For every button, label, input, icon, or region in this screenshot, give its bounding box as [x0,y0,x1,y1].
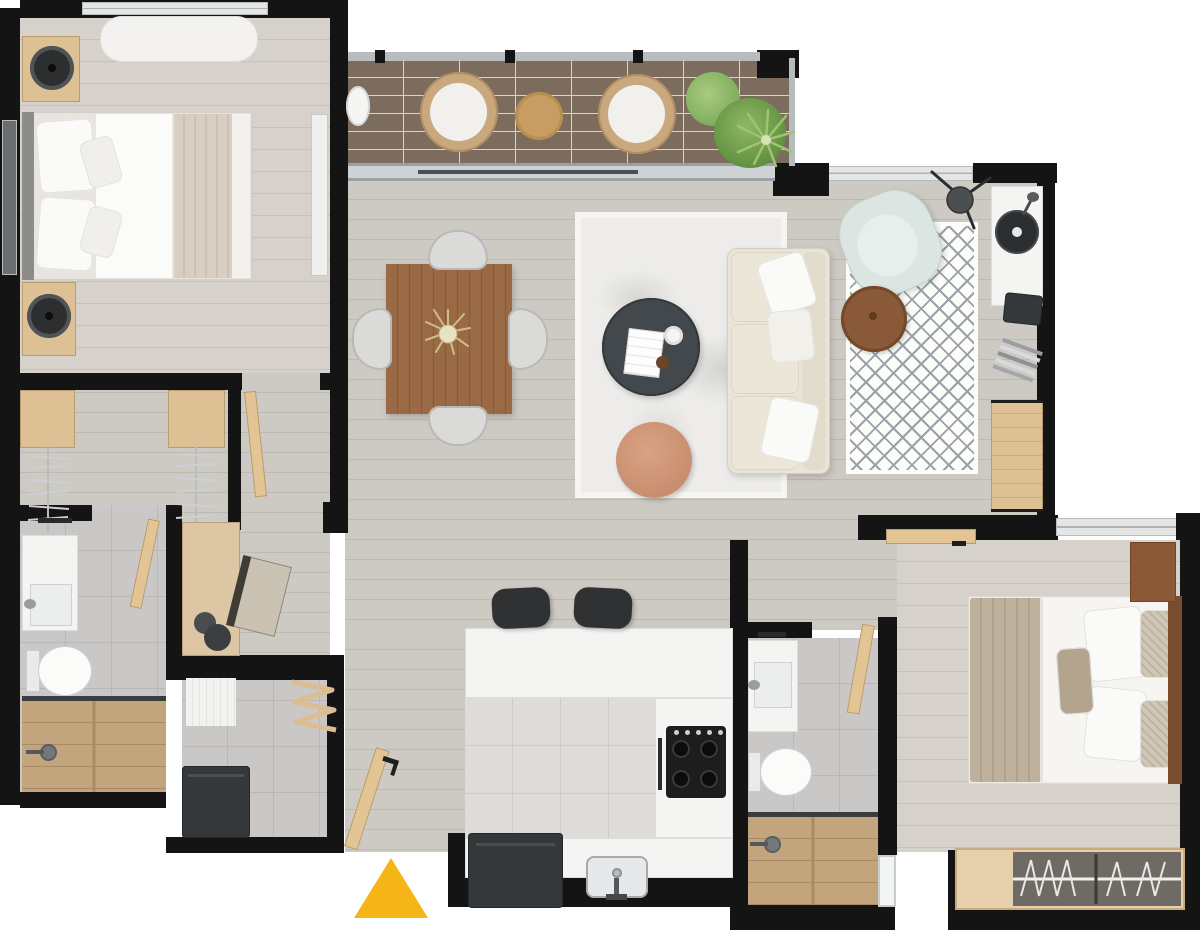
closet-shelf-a [20,390,75,448]
bed-headboard [22,112,34,280]
floor-plan [0,0,1200,930]
small-bowl [656,356,669,369]
bedroom2-door-leaf [886,529,976,544]
chair-cushion [430,83,487,141]
bedroom-2-doorway-floor [878,540,897,617]
vinyl-label [1012,227,1022,237]
washer-lid-line [188,774,244,777]
bed-foot-fold [232,114,250,278]
bedroom2-bed [968,596,1182,784]
oven-handle [658,738,662,790]
cooktop [666,726,726,798]
balcony-railing-top [348,52,760,61]
pouf [616,422,692,498]
bed2-pillow-1 [1082,605,1147,683]
knob-4 [707,730,712,735]
toilet2-bowl [760,748,812,796]
shower1-arm [26,750,44,754]
towel-bar-2 [758,632,786,637]
vanity-faucet [24,599,36,609]
wall-bedroom1-right [330,0,348,375]
bedroom2-top-window [1056,518,1178,536]
bar-stool-2 [573,587,633,630]
wicker-chair-1 [420,72,498,152]
wall-bedroom1-bottom-right [320,373,348,390]
wall-hall-stub [323,502,348,533]
book [623,328,664,378]
bathroom1-vanity [22,535,78,631]
laundry-mat [186,678,236,726]
wall-bedroom2-left [878,617,897,855]
burner-2 [700,740,718,758]
burner-1 [672,740,690,758]
balcony-planter [346,86,370,126]
burner-4 [700,770,718,788]
closet-shelf-b [168,390,225,448]
entrance-marker-icon [354,858,428,918]
wicker-chair-2 [598,74,676,154]
bathroom1-toilet [26,646,92,696]
bedroom1-bench [100,16,258,62]
shower2-arm [750,842,768,846]
vanity-sink-basin [30,584,72,626]
wardrobe-hangers-icon [1013,852,1181,906]
wall-closet-divider [228,390,241,530]
speaker-top [30,46,74,90]
burner-3 [672,770,690,788]
refrigerator [468,833,563,908]
bed-blanket [174,114,232,278]
bedroom2-wardrobe [955,848,1185,910]
knob-3 [696,730,701,735]
speaker-bottom [27,294,71,338]
floor-lamp-icon [928,168,992,232]
side-table-knot [869,312,877,320]
bedroom1-bed [22,112,252,280]
exterior-notch [897,852,948,930]
kitchen-sink [586,856,648,898]
palm-plant-icon [728,106,798,172]
drying-rack-icon [286,676,338,738]
railing-post-1 [375,50,385,63]
side-table [841,286,907,352]
vanity2-faucet [748,680,760,690]
toilet-bowl [38,646,92,696]
chair-cushion [608,85,665,143]
sink-faucet-base [606,894,627,900]
cup [664,326,683,345]
sliding-door-panel [418,170,638,174]
wall-bedroom1-bottom [20,373,242,390]
magazine-stack-icon [990,334,1044,390]
bathroom2-shower [748,817,878,905]
kitchen-inner-floor [465,698,665,843]
fridge-lid-line [476,843,555,846]
bar-stool-1 [491,587,551,630]
bedroom1-mirror-wardrobe [311,114,328,276]
kitchen-island [465,628,733,698]
bed2-headboard [1168,596,1182,784]
knob-2 [685,730,690,735]
door-handle-icon [952,541,966,546]
dining-plant-icon [420,304,476,360]
bed2-blanket [970,598,1042,782]
shower2-door-panel [878,855,896,907]
hall-cabinet [991,400,1043,512]
wall-laundry-bottom [166,837,344,853]
balcony-sliding-door [348,163,775,181]
bedroom1-top-window [82,2,268,15]
railing-post-3 [633,50,643,63]
bedroom1-left-window [2,120,17,275]
media-sideboard [991,186,1043,306]
wall-bathroom2-bottom [730,905,895,930]
washing-machine [182,766,250,838]
bed2-accent-pillow [1056,647,1095,715]
sofa-pillow-2 [766,308,815,364]
coffee-table [602,298,700,396]
sink-drain [612,868,622,878]
hanging-rail-b-icon [174,446,220,532]
railing-post-2 [505,50,515,63]
towel-bar-1 [38,518,72,523]
tonearm-base [1027,192,1039,202]
wall-bathroom1-bottom [20,792,166,808]
knob-1 [674,730,679,735]
wall-kitchen-left [448,833,465,880]
balcony-table [515,92,563,140]
desk-lamp-shade [204,624,231,651]
knob-5 [718,730,723,735]
bathroom2-vanity [748,640,798,732]
vinyl-record-icon [995,210,1039,254]
bathroom2-toilet [748,748,812,796]
bedroom2-nightstand [1130,542,1176,602]
armchair-seat [848,205,927,285]
small-speaker [1003,292,1044,326]
wall-closet-right [330,390,348,502]
sofa [727,248,830,474]
